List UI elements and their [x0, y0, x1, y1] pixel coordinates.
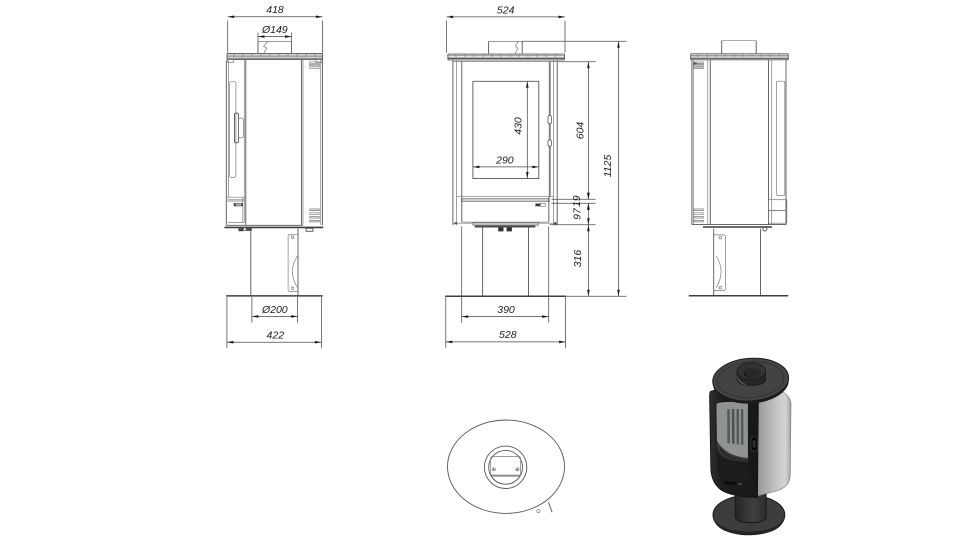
svg-text:422: 422: [267, 329, 285, 341]
svg-text:Ø149: Ø149: [261, 24, 288, 36]
svg-text:316: 316: [572, 250, 584, 268]
svg-text:528: 528: [499, 329, 517, 341]
svg-text:604: 604: [575, 122, 587, 140]
svg-text:430: 430: [513, 117, 525, 135]
svg-text:Ø200: Ø200: [261, 304, 288, 316]
svg-text:524: 524: [497, 4, 515, 16]
svg-text:390: 390: [497, 304, 515, 316]
svg-text:19: 19: [571, 195, 583, 207]
svg-text:97: 97: [572, 207, 584, 220]
svg-text:290: 290: [495, 155, 514, 167]
svg-text:418: 418: [266, 4, 284, 16]
svg-text:1125: 1125: [602, 155, 614, 178]
